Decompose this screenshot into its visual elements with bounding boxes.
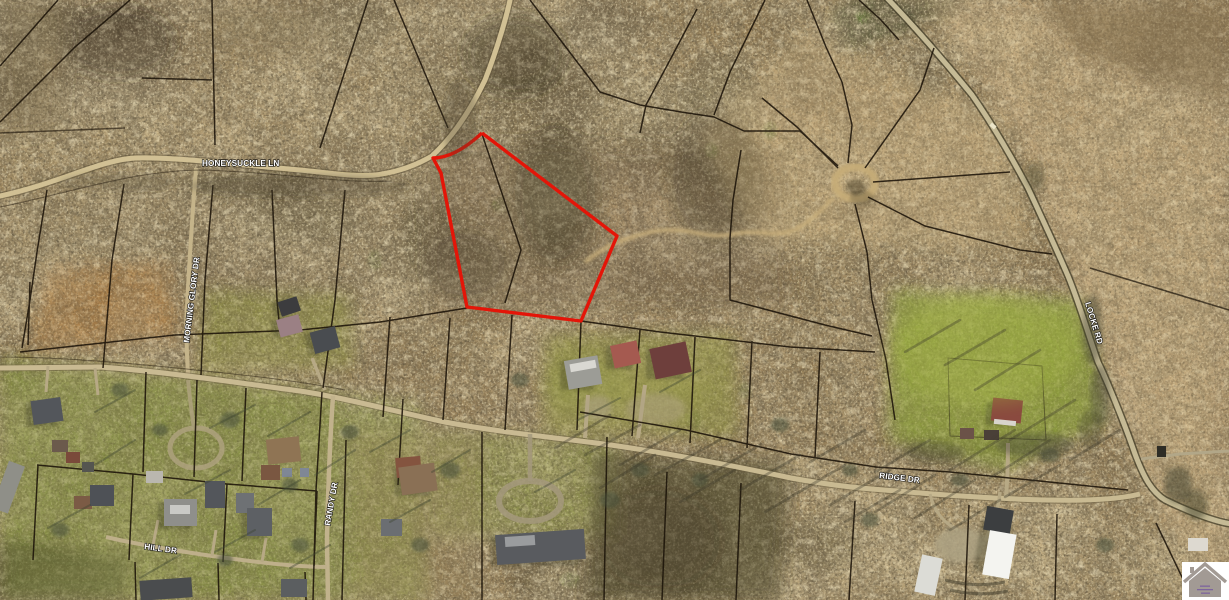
svg-text:HONEYSUCKLE LN: HONEYSUCKLE LN xyxy=(202,159,279,168)
